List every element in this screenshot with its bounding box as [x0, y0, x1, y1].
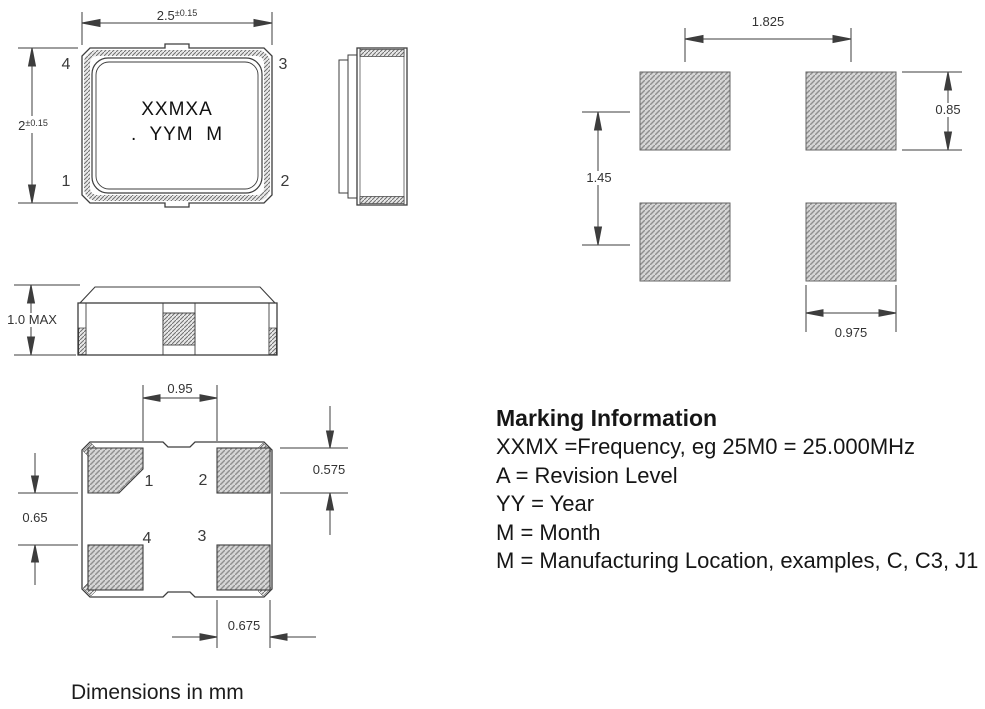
datasheet-drawing-page: 2.5±0.15 2±0.15 4 3 1 2 XXMXA . YYM M 1.… — [0, 0, 985, 709]
side-view-top-seal — [360, 50, 404, 57]
bottom-pad-3 — [217, 545, 270, 590]
marking-information-title: Marking Information — [496, 404, 978, 433]
bottomview-pin-3: 3 — [194, 529, 210, 545]
marking-info-line: XXMX =Frequency, eg 25M0 = 25.000MHz — [496, 433, 978, 462]
marking-info-line: M = Manufacturing Location, examples, C,… — [496, 547, 978, 576]
marking-info-line: M = Month — [496, 519, 978, 548]
bottom-view — [82, 442, 272, 597]
marking-info-line: YY = Year — [496, 490, 978, 519]
land-pad-top-left — [640, 72, 730, 150]
dim-frontview-height: 1.0 MAX — [2, 313, 62, 327]
topview-pin-2: 2 — [277, 174, 293, 190]
front-view — [78, 287, 277, 355]
marking-info-line: A = Revision Level — [496, 462, 978, 491]
marking-information: Marking Information XXMX =Frequency, eg … — [496, 404, 978, 576]
dim-topview-width: 2.5±0.15 — [137, 6, 217, 23]
front-view-lid — [80, 287, 275, 303]
land-pattern — [640, 72, 896, 281]
front-view-left-castellation — [79, 328, 86, 355]
topview-marking-line2: . YYM M — [107, 124, 247, 146]
dim-bottomview-pad-width: 0.675 — [218, 619, 270, 633]
land-pad-top-right — [806, 72, 896, 150]
dim-land-pitch-x: 1.825 — [738, 15, 798, 29]
front-view-center-pad — [163, 313, 195, 345]
topview-marking-line1: XXMXA — [107, 99, 247, 121]
dim-land-pad-width: 0.975 — [821, 326, 881, 340]
side-view-right — [339, 48, 407, 205]
dim-land-pad-height: 0.85 — [926, 103, 970, 117]
land-pad-bottom-right — [806, 203, 896, 281]
bottomview-pin-2: 2 — [195, 473, 211, 489]
topview-pin-3: 3 — [275, 57, 291, 73]
topview-pin-4: 4 — [58, 57, 74, 73]
land-pad-bottom-left — [640, 203, 730, 281]
front-view-right-castellation — [269, 328, 276, 355]
topview-pin-1: 1 — [58, 174, 74, 190]
dim-land-pitch-y: 1.45 — [577, 171, 621, 185]
bottomview-pin-1: 1 — [141, 474, 157, 490]
bottom-pad-2 — [217, 448, 270, 493]
dim-bottomview-pad-height: 0.575 — [305, 463, 353, 477]
dim-bottomview-center-gap: 0.95 — [155, 382, 205, 396]
bottomview-pin-4: 4 — [139, 531, 155, 547]
dimensions-note: Dimensions in mm — [71, 681, 244, 705]
side-view-bottom-seal — [360, 197, 404, 204]
dim-topview-height: 2±0.15 — [11, 116, 55, 133]
bottom-pad-4 — [88, 545, 143, 590]
dim-bottomview-row-gap: 0.65 — [15, 511, 55, 525]
